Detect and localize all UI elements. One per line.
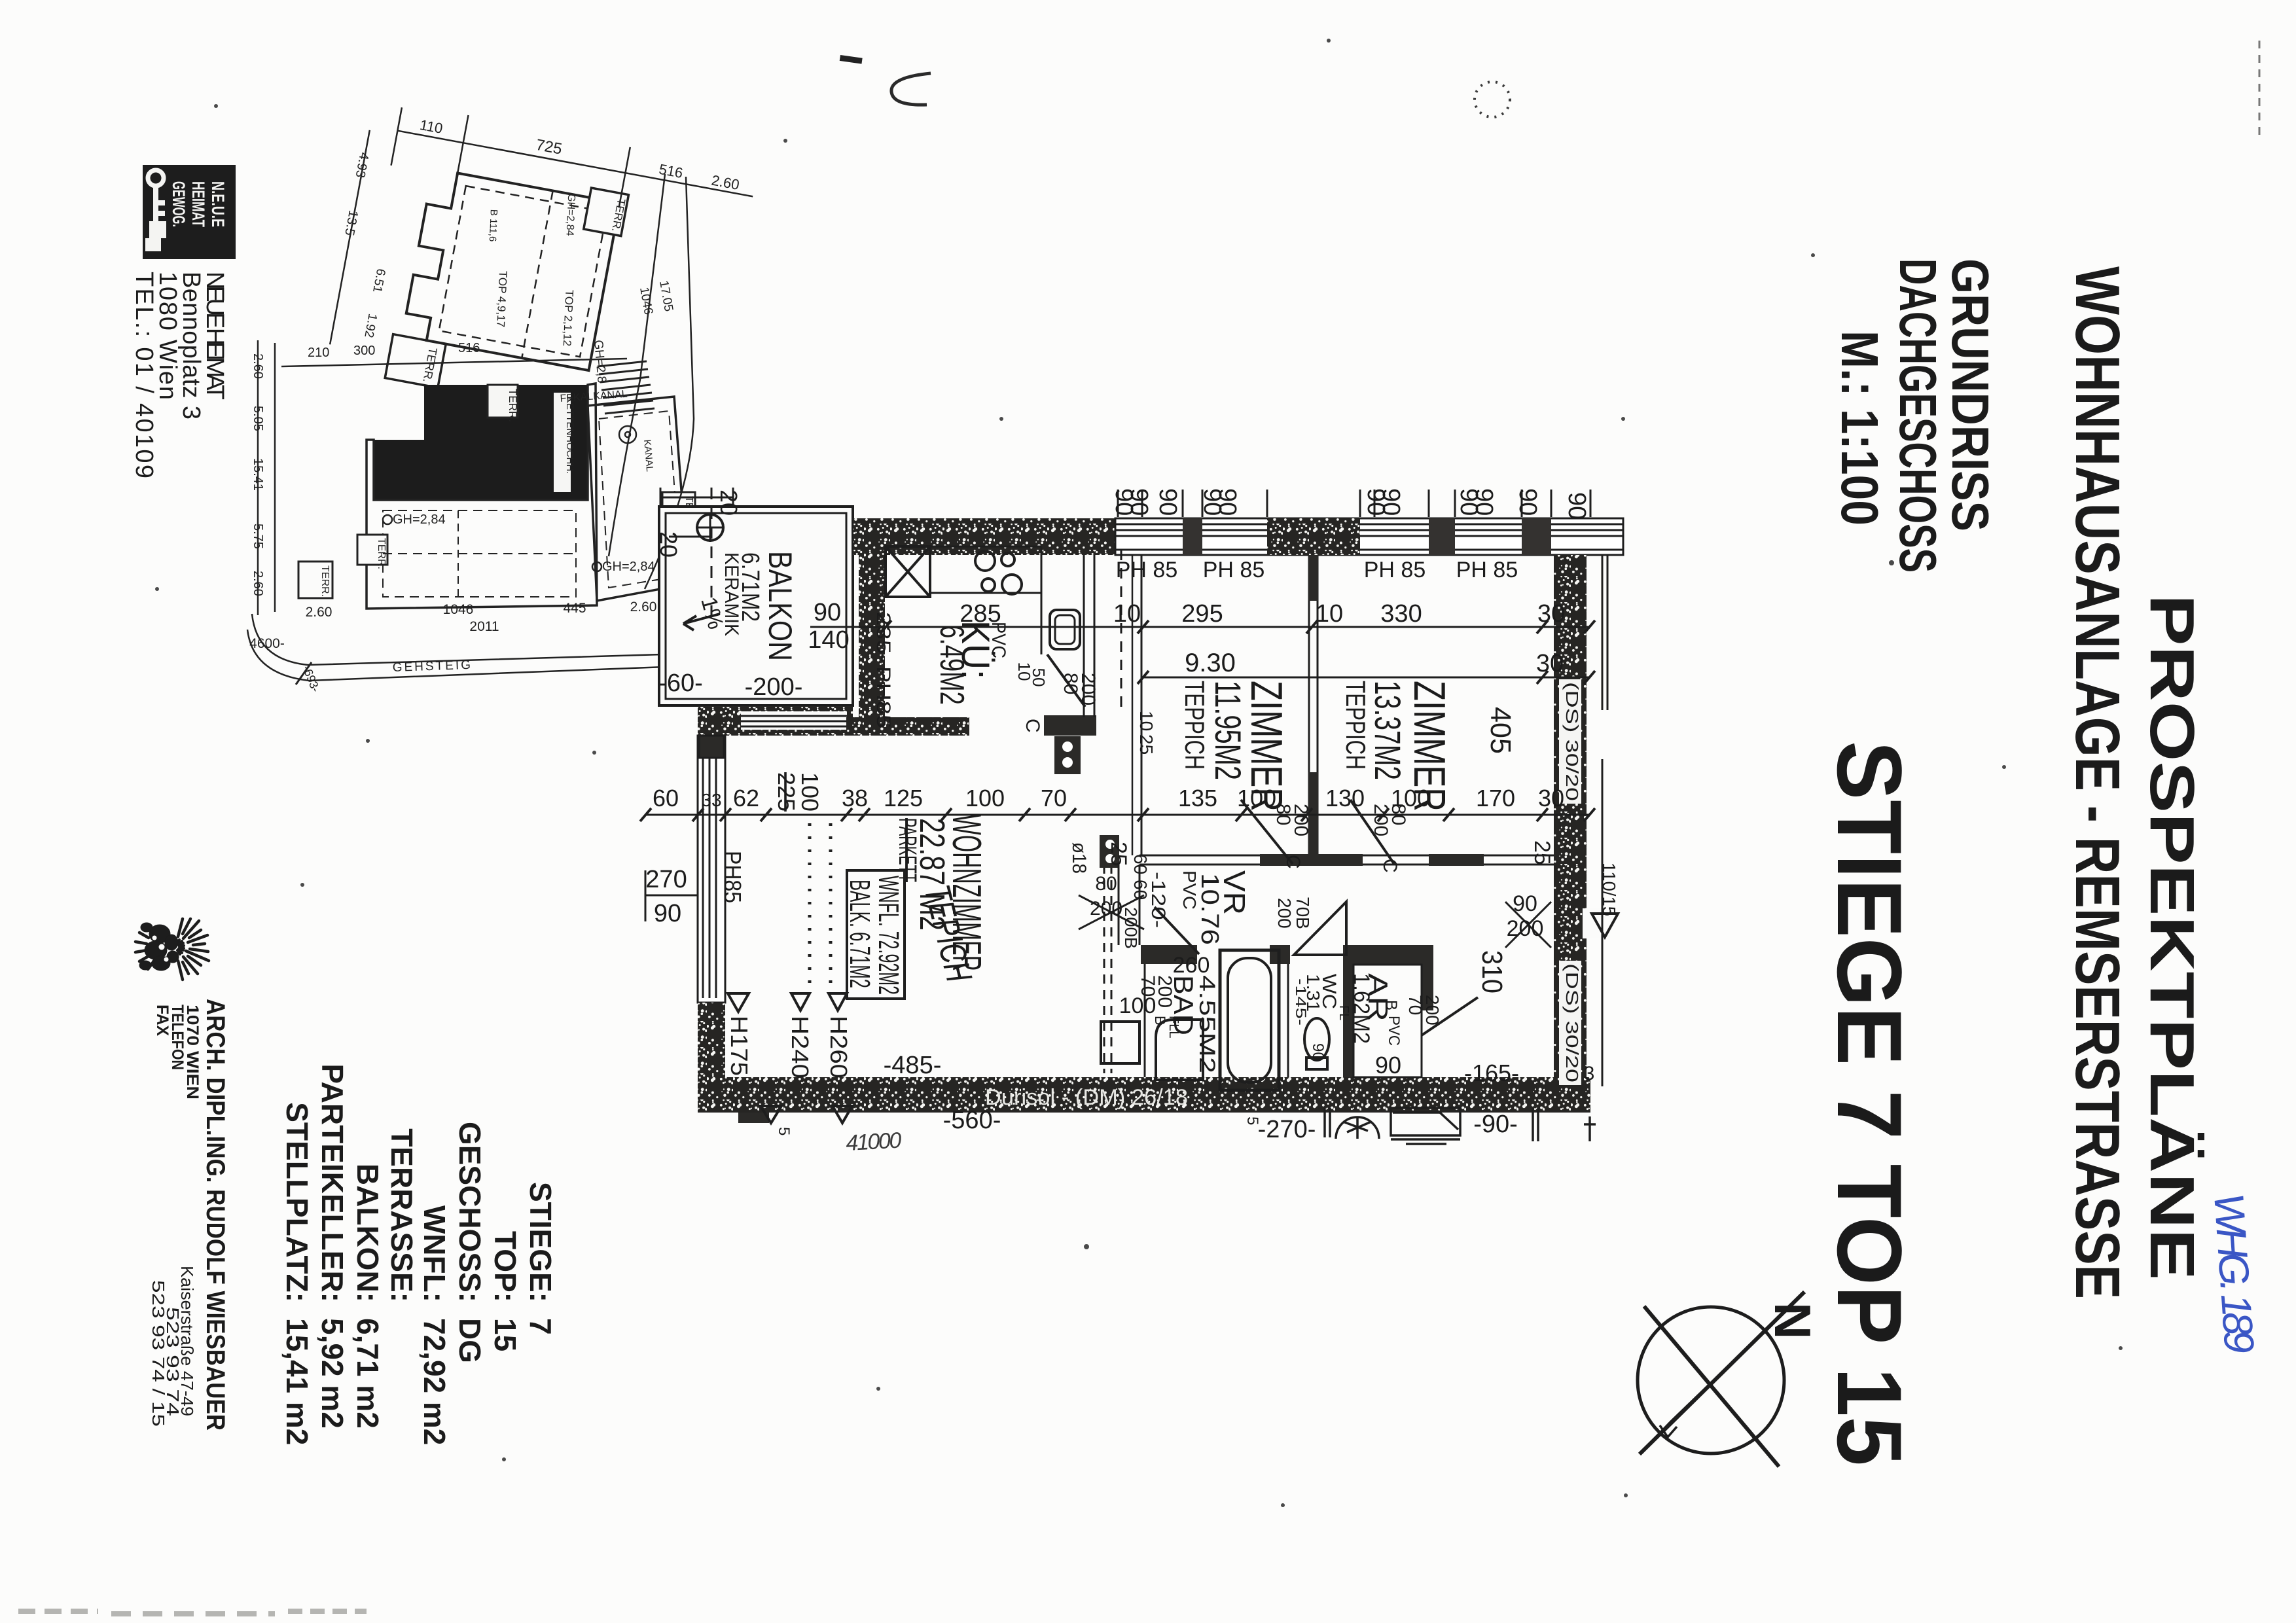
svg-text:(DS) 30/20: (DS) 30/20 bbox=[1562, 682, 1582, 801]
svg-text:B: B bbox=[1382, 1000, 1400, 1010]
svg-text:25: 25 bbox=[1106, 842, 1131, 866]
svg-text:100: 100 bbox=[965, 785, 1005, 811]
svg-text:GH=2,84: GH=2,84 bbox=[393, 512, 446, 527]
svg-text:M.: 1:100: M.: 1:100 bbox=[1831, 330, 1889, 526]
svg-text:70B: 70B bbox=[1293, 897, 1313, 929]
svg-text:140: 140 bbox=[808, 626, 849, 654]
svg-text:TERR.: TERR. bbox=[420, 346, 440, 383]
svg-text:BALKON:: BALKON: bbox=[351, 1164, 385, 1302]
svg-text:4600-: 4600- bbox=[249, 636, 285, 651]
svg-text:90: 90 bbox=[1213, 488, 1241, 516]
svg-text:PARKETT: PARKETT bbox=[893, 818, 921, 882]
svg-text:9.30: 9.30 bbox=[1185, 649, 1236, 677]
svg-text:N: N bbox=[1764, 1302, 1821, 1339]
svg-text:PH 85: PH 85 bbox=[1116, 558, 1178, 582]
svg-text:330: 330 bbox=[1380, 600, 1422, 628]
svg-text:5.75: 5.75 bbox=[251, 524, 265, 549]
svg-text:90: 90 bbox=[1125, 488, 1153, 516]
svg-text:TEL.: 01 / 40109: TEL.: 01 / 40109 bbox=[130, 272, 158, 478]
svg-text:60: 60 bbox=[653, 785, 679, 811]
svg-text:4.55M2: 4.55M2 bbox=[1194, 975, 1219, 1073]
svg-text:90: 90 bbox=[1377, 488, 1405, 516]
svg-text:135: 135 bbox=[1178, 785, 1217, 811]
svg-text:20: 20 bbox=[715, 490, 742, 516]
svg-text:2.60: 2.60 bbox=[251, 571, 265, 596]
svg-text:H260: H260 bbox=[825, 1016, 852, 1079]
svg-text:5.05: 5.05 bbox=[251, 406, 265, 431]
svg-text:1046: 1046 bbox=[637, 286, 655, 315]
svg-text:20: 20 bbox=[655, 531, 682, 558]
svg-text:PH85: PH85 bbox=[719, 851, 746, 903]
svg-text:ø18: ø18 bbox=[1068, 842, 1090, 874]
svg-text:TEPPICH: TEPPICH bbox=[1340, 681, 1371, 770]
svg-text:30: 30 bbox=[1538, 785, 1564, 811]
svg-text:90: 90 bbox=[814, 599, 841, 626]
svg-text:6.49M2: 6.49M2 bbox=[933, 625, 971, 705]
svg-text:TEPPICH: TEPPICH bbox=[1179, 681, 1210, 770]
svg-text:WOHNHAUSANLAGE - REMSERSTRASSE: WOHNHAUSANLAGE - REMSERSTRASSE bbox=[2062, 266, 2132, 1299]
svg-text:110: 110 bbox=[418, 116, 444, 137]
svg-text:-270-: -270- bbox=[1258, 1116, 1316, 1143]
svg-text:-200-: -200- bbox=[745, 673, 803, 701]
svg-text:15.41: 15.41 bbox=[251, 458, 265, 491]
svg-text:C: C bbox=[1282, 855, 1304, 869]
svg-text:-485-: -485- bbox=[884, 1052, 942, 1079]
svg-text:200: 200 bbox=[1507, 916, 1544, 941]
svg-text:33: 33 bbox=[701, 790, 721, 810]
svg-text:285: 285 bbox=[960, 600, 1001, 628]
svg-text:13.5: 13.5 bbox=[342, 209, 361, 236]
svg-text:210: 210 bbox=[308, 346, 329, 360]
svg-text:-693-: -693- bbox=[300, 664, 322, 694]
svg-text:6,71 m2: 6,71 m2 bbox=[351, 1318, 385, 1429]
svg-text:270: 270 bbox=[645, 866, 687, 893]
svg-text:5,92 m2: 5,92 m2 bbox=[315, 1318, 350, 1429]
svg-text:WNFL. 72.92M2: WNFL. 72.92M2 bbox=[872, 876, 905, 995]
svg-text:PH 85: PH 85 bbox=[1364, 558, 1426, 582]
svg-text:62: 62 bbox=[733, 785, 759, 811]
svg-text:BALK. 6.71M2: BALK. 6.71M2 bbox=[844, 880, 876, 988]
svg-text:TOP:: TOP: bbox=[488, 1231, 522, 1302]
svg-text:10: 10 bbox=[1113, 600, 1141, 628]
svg-text:C: C bbox=[1022, 719, 1043, 733]
svg-text:523 93 74 / 15: 523 93 74 / 15 bbox=[149, 1280, 168, 1427]
svg-text:B 111,6: B 111,6 bbox=[487, 209, 499, 241]
svg-text:-165-: -165- bbox=[1464, 1060, 1519, 1086]
svg-text:90: 90 bbox=[1513, 891, 1537, 916]
svg-text:30: 30 bbox=[1536, 650, 1564, 677]
svg-text:2.60: 2.60 bbox=[630, 599, 657, 615]
svg-text:GEWOG.: GEWOG. bbox=[169, 181, 188, 227]
svg-text:10: 10 bbox=[1316, 600, 1343, 628]
svg-text:-60-: -60- bbox=[658, 669, 703, 697]
svg-text:516: 516 bbox=[458, 341, 480, 355]
svg-text:(DS) 30/20: (DS) 30/20 bbox=[1562, 963, 1582, 1082]
svg-text:90: 90 bbox=[1309, 1043, 1327, 1061]
svg-text:310: 310 bbox=[1476, 950, 1508, 993]
svg-text:PH 85: PH 85 bbox=[1203, 558, 1265, 582]
svg-text:PH 85: PH 85 bbox=[1456, 558, 1518, 582]
svg-text:4.93: 4.93 bbox=[353, 151, 372, 179]
svg-text:KERAMIK: KERAMIK bbox=[721, 552, 742, 636]
svg-text:WNFL:: WNFL: bbox=[418, 1205, 452, 1302]
svg-text:100: 100 bbox=[1119, 993, 1157, 1018]
svg-text:90: 90 bbox=[1375, 1052, 1401, 1079]
svg-text:260: 260 bbox=[1173, 953, 1210, 978]
svg-text:2.60: 2.60 bbox=[306, 605, 332, 620]
svg-text:GH=2,8: GH=2,8 bbox=[591, 340, 609, 384]
svg-text:GH=2,84: GH=2,84 bbox=[564, 194, 577, 236]
svg-text:-90-: -90- bbox=[1473, 1111, 1518, 1138]
svg-text:295: 295 bbox=[1181, 600, 1223, 628]
svg-text:100: 100 bbox=[1237, 785, 1276, 811]
svg-text:H175: H175 bbox=[726, 1016, 753, 1076]
svg-text:STIEGE:: STIEGE: bbox=[524, 1182, 558, 1302]
svg-text:GESCHOSS:: GESCHOSS: bbox=[453, 1122, 487, 1302]
svg-text:60: 60 bbox=[1130, 854, 1151, 874]
svg-text:-145-: -145- bbox=[1293, 978, 1309, 1026]
svg-text:TOP 2,1,12: TOP 2,1,12 bbox=[561, 289, 576, 346]
svg-text:405: 405 bbox=[1484, 707, 1516, 754]
svg-text:PVC: PVC bbox=[1385, 1016, 1403, 1046]
svg-text:200B: 200B bbox=[1121, 907, 1141, 949]
svg-text:TERRASSE:: TERRASSE: bbox=[385, 1128, 419, 1302]
svg-text:200: 200 bbox=[1422, 995, 1443, 1026]
svg-text:41000: 41000 bbox=[845, 1128, 902, 1156]
svg-text:PROSPEKTPLÄNE: PROSPEKTPLÄNE bbox=[2137, 594, 2207, 1280]
svg-text:-235-: -235- bbox=[872, 603, 894, 662]
svg-text:90: 90 bbox=[1470, 488, 1498, 516]
svg-text:5: 5 bbox=[775, 1127, 793, 1135]
svg-text:BALKON: BALKON bbox=[762, 551, 798, 661]
svg-text:1.62M2: 1.62M2 bbox=[1349, 973, 1374, 1044]
svg-text:STELLPLATZ:: STELLPLATZ: bbox=[280, 1102, 314, 1302]
svg-text:1046: 1046 bbox=[443, 602, 474, 617]
svg-text:10: 10 bbox=[1136, 711, 1157, 731]
svg-text:15: 15 bbox=[488, 1318, 522, 1351]
svg-text:38: 38 bbox=[842, 785, 868, 811]
svg-text:TERR.: TERR. bbox=[507, 389, 519, 422]
svg-text:90: 90 bbox=[1563, 492, 1590, 520]
svg-text:90: 90 bbox=[1154, 488, 1181, 516]
svg-text:200: 200 bbox=[1274, 898, 1295, 929]
svg-text:2.60: 2.60 bbox=[251, 353, 265, 379]
svg-text:25: 25 bbox=[1530, 840, 1554, 865]
svg-text:FAX: FAX bbox=[153, 1005, 171, 1036]
svg-text:TOP 4,9,17: TOP 4,9,17 bbox=[494, 270, 509, 327]
svg-text:STIEGE 7 TOP 15: STIEGE 7 TOP 15 bbox=[1818, 741, 1921, 1466]
svg-text:15,41 m2: 15,41 m2 bbox=[280, 1318, 314, 1445]
svg-text:DACHGESCHOSS: DACHGESCHOSS bbox=[1889, 259, 1947, 573]
svg-text:17.05: 17.05 bbox=[656, 279, 675, 312]
svg-text:PVC: PVC bbox=[1179, 870, 1200, 910]
svg-text:N.E.U.E: N.E.U.E bbox=[208, 181, 228, 227]
svg-text:25: 25 bbox=[1136, 734, 1157, 755]
svg-text:130: 130 bbox=[1325, 785, 1365, 811]
svg-text:GRUNDRISS: GRUNDRISS bbox=[1941, 259, 2000, 531]
svg-text:516: 516 bbox=[658, 161, 685, 181]
svg-text:50: 50 bbox=[1029, 668, 1049, 687]
svg-text:HEIMAT: HEIMAT bbox=[188, 181, 208, 227]
svg-text:PARTEIKELLER:: PARTEIKELLER: bbox=[315, 1063, 350, 1302]
svg-text:ARCH. DIPL.ING. RUDOLF WIESBAU: ARCH. DIPL.ING. RUDOLF WIESBAUER bbox=[201, 999, 230, 1431]
svg-text:13.37M2: 13.37M2 bbox=[1367, 681, 1408, 780]
svg-text:1.92: 1.92 bbox=[361, 312, 379, 338]
svg-text:72,92 m2: 72,92 m2 bbox=[418, 1318, 452, 1445]
svg-text:Durisol - (DM) 26/18: Durisol - (DM) 26/18 bbox=[985, 1085, 1188, 1110]
svg-text:200: 200 bbox=[1154, 975, 1175, 1008]
svg-text:WHG. 189: WHG. 189 bbox=[2205, 1192, 2263, 1355]
svg-text:KANAL: KANAL bbox=[641, 439, 655, 472]
svg-text:300: 300 bbox=[353, 344, 375, 358]
svg-text:-560-: -560- bbox=[943, 1107, 1001, 1134]
svg-text:100: 100 bbox=[797, 772, 823, 811]
svg-text:2011: 2011 bbox=[469, 619, 499, 634]
svg-text:GH=2,84: GH=2,84 bbox=[602, 560, 655, 574]
svg-text:125: 125 bbox=[884, 785, 923, 811]
svg-text:3: 3 bbox=[1584, 1063, 1595, 1084]
svg-text:PH85: PH85 bbox=[872, 666, 894, 728]
svg-text:80: 80 bbox=[1095, 873, 1117, 895]
svg-text:225: 225 bbox=[773, 772, 800, 811]
svg-text:DG: DG bbox=[453, 1318, 487, 1363]
svg-text:11.95M2: 11.95M2 bbox=[1208, 681, 1249, 780]
svg-text:H240: H240 bbox=[787, 1016, 814, 1079]
svg-text:FL: FL bbox=[1336, 1005, 1351, 1020]
svg-text:90: 90 bbox=[1514, 488, 1541, 516]
svg-text:6.51: 6.51 bbox=[370, 268, 387, 294]
svg-text:FLL: FLL bbox=[1166, 1016, 1181, 1038]
svg-text:7: 7 bbox=[524, 1318, 558, 1335]
svg-text:200: 200 bbox=[1077, 673, 1099, 705]
svg-text:725: 725 bbox=[535, 136, 564, 158]
svg-text:445: 445 bbox=[563, 601, 586, 616]
svg-text:100: 100 bbox=[1391, 785, 1430, 811]
svg-text:90: 90 bbox=[654, 900, 681, 927]
svg-text:TERR.: TERR. bbox=[319, 565, 331, 597]
svg-text:GEHSTEIG: GEHSTEIG bbox=[392, 658, 473, 675]
svg-text:70: 70 bbox=[1041, 785, 1067, 811]
svg-text:30: 30 bbox=[1537, 600, 1565, 628]
svg-text:5: 5 bbox=[1244, 1116, 1261, 1125]
svg-text:C: C bbox=[1379, 859, 1401, 873]
svg-text:170: 170 bbox=[1476, 785, 1515, 811]
svg-text:KETTENHOCHH.: KETTENHOCHH. bbox=[564, 397, 575, 474]
